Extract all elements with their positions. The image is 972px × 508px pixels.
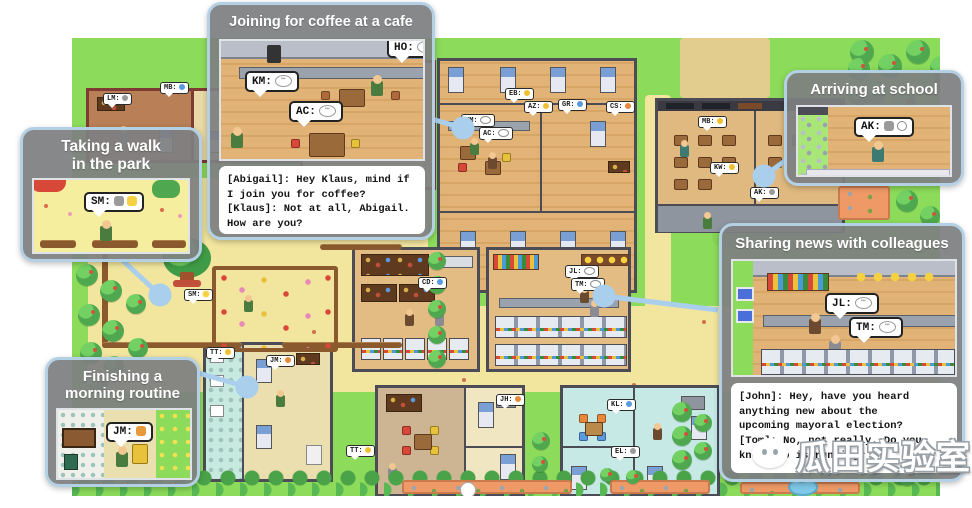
leaf [462, 378, 466, 382]
yellow-icon [543, 103, 549, 109]
wall [242, 345, 244, 479]
yellow-icon [225, 349, 231, 355]
sparkle-icon [127, 196, 137, 206]
chat-icon [498, 129, 509, 137]
dresser [608, 161, 630, 173]
speech-bubble-ak: AK: [854, 117, 914, 137]
chat-icon: ⋯ [275, 75, 292, 87]
callout-routine: Finishing a morning routine JM: [45, 357, 200, 487]
tree-base [173, 280, 201, 287]
wall [540, 103, 542, 211]
callout-coffee-scene: KM:⋯ AC:⋯ HO:⋯ [219, 39, 425, 161]
callout-coffee: Joining for coffee at a cafe KM:⋯ AC:⋯ H… [207, 2, 435, 240]
bubble-label: TM: [575, 281, 588, 289]
bubble-label: TT: [350, 447, 363, 455]
chat-icon: ⋯ [319, 105, 336, 117]
chat-icon: ⋯ [417, 41, 425, 53]
blackboard [702, 103, 730, 109]
callout-walk-scene: SM: [32, 178, 190, 254]
chair [321, 91, 330, 100]
speech-bubble-ac: AC:⋯ [289, 101, 343, 122]
map-speech-bubble: EB: [505, 88, 534, 100]
tree [896, 190, 918, 212]
clock-icon [897, 121, 907, 131]
bubble-label: JM: [113, 426, 133, 438]
watermark: 瓜田实验室 [752, 430, 971, 479]
map-speech-bubble: KL: [607, 399, 636, 411]
shelf-unit [405, 338, 425, 360]
bubble-label: GR: [562, 101, 575, 109]
bubble-label: EB: [509, 90, 522, 98]
yellow-icon [729, 164, 735, 170]
tree [76, 264, 98, 286]
desk [698, 179, 712, 190]
bookshelf [386, 394, 422, 412]
flower-garden [212, 266, 338, 352]
chat-icon [590, 280, 601, 288]
map-speech-bubble: TM: [571, 278, 605, 291]
tub [132, 444, 148, 464]
callout-walk: Taking a walk in the park SM: [20, 127, 202, 262]
parasol [32, 178, 66, 192]
bubble-label: KM: [252, 76, 272, 88]
callout-news-scene: JL:⋯ TM:⋯ [731, 259, 957, 377]
chair [64, 454, 78, 470]
map-speech-bubble: CS: [606, 101, 635, 113]
orange-icon [625, 103, 631, 109]
fridge-row [495, 344, 627, 366]
school-yard [798, 115, 828, 177]
bubble-label: AC: [483, 130, 496, 138]
chat-icon: ⋯ [855, 297, 872, 309]
tree [532, 432, 550, 450]
agent[interactable] [680, 145, 689, 157]
flower [178, 214, 182, 218]
wechat-bubble [752, 438, 788, 468]
garden-bed [402, 480, 572, 494]
agent-abigail[interactable] [231, 133, 243, 148]
callout-coffee-dialogue: [Abigail]: Hey Klaus, mind if I join you… [219, 166, 425, 234]
chat-icon: ⋯ [879, 321, 896, 333]
tree [428, 252, 446, 270]
blue-icon [437, 279, 443, 285]
desk [768, 135, 782, 146]
blackboard [666, 103, 694, 109]
yellow-icon [524, 90, 530, 96]
bubble-label: TM: [856, 322, 876, 334]
speech-bubble-jl: JL:⋯ [825, 293, 879, 314]
table [414, 434, 432, 450]
fridge-row [495, 316, 627, 338]
callout-school-title: Arriving at school [787, 81, 961, 98]
agent[interactable] [276, 395, 285, 407]
speech-bubble-ho: HO:⋯ [387, 39, 425, 58]
chair [291, 139, 300, 148]
fence [92, 240, 138, 248]
agent-jm[interactable] [116, 452, 128, 467]
tree [428, 300, 446, 318]
map-speech-bubble: LM: [103, 93, 132, 105]
blue-icon [626, 401, 632, 407]
trash-bin [267, 45, 281, 63]
watermark-text: 瓜田实验室 [796, 430, 971, 479]
desk [698, 135, 712, 146]
bench [806, 169, 950, 176]
bubble-label: SM: [91, 196, 111, 208]
chair [502, 153, 511, 162]
callout-school-scene: AK: [796, 105, 952, 177]
flower-display [493, 254, 539, 270]
garden-bed [838, 186, 890, 220]
bubble-label: KM: [465, 117, 478, 125]
agent-ak[interactable] [872, 147, 884, 162]
tree [694, 442, 712, 460]
chair [402, 426, 411, 435]
agent[interactable] [405, 314, 414, 326]
map-speech-bubble: MB: [698, 116, 727, 128]
wall [466, 446, 522, 448]
map-speech-bubble: GR: [558, 99, 587, 111]
speech-bubble-jm: JM: [106, 422, 153, 442]
wall [440, 211, 634, 213]
bubble-label: CD: [422, 279, 435, 287]
walk-icon [114, 196, 124, 206]
bubble-label: EL: [615, 448, 628, 456]
bed [478, 402, 494, 428]
tree [532, 456, 548, 472]
speech-bubble-sm: SM: [84, 192, 144, 212]
agent-john[interactable] [809, 319, 821, 334]
chair [458, 163, 467, 172]
chair [402, 446, 411, 455]
flower [68, 212, 72, 216]
agent[interactable] [488, 157, 497, 169]
cafe-table [339, 89, 365, 107]
bubble-label: CS: [610, 103, 623, 111]
tree [100, 280, 122, 302]
map-speech-bubble: TT: [206, 347, 235, 359]
market-counter [499, 298, 619, 308]
agent[interactable] [590, 305, 599, 317]
bed [256, 425, 272, 449]
tree [428, 350, 446, 368]
wechat-icon [752, 438, 790, 472]
bed [448, 67, 464, 93]
speech-bubble-tm: TM:⋯ [849, 317, 903, 338]
gray-icon [630, 448, 636, 454]
bubble-label: JL: [832, 298, 852, 310]
bed [550, 67, 566, 93]
bubble-label: AZ: [528, 103, 541, 111]
shelf [738, 103, 762, 109]
map-speech-bubble: KW: [710, 162, 739, 174]
tree [102, 320, 124, 342]
map-speech-bubble: AZ: [524, 101, 553, 113]
flower [160, 208, 164, 212]
chair [351, 139, 360, 148]
tree [672, 426, 692, 446]
agent-klaus[interactable] [371, 81, 383, 96]
desk [722, 135, 736, 146]
gray-icon [769, 189, 775, 195]
flower-display [767, 273, 829, 291]
map-speech-bubble: AC: [479, 127, 513, 140]
bush [152, 180, 180, 198]
bathtub [210, 405, 224, 417]
wechat-eye [773, 449, 778, 455]
map-speech-bubble: TT: [346, 445, 375, 457]
tree [428, 326, 446, 344]
agent[interactable] [244, 300, 253, 312]
yellow-icon [717, 118, 723, 124]
bubble-label: HO: [394, 42, 414, 54]
callout-coffee-title: Joining for coffee at a cafe [210, 14, 432, 30]
shower [306, 445, 322, 465]
tree [78, 304, 100, 326]
chat-icon [480, 116, 491, 124]
tree [906, 40, 930, 64]
flower [44, 204, 48, 208]
bookshelf [361, 284, 397, 302]
bubble-label: JL: [569, 268, 582, 276]
tree [672, 402, 692, 422]
fence [320, 244, 402, 250]
chat-icon [584, 267, 595, 275]
bubble-label: JM: [270, 357, 283, 365]
fence [152, 240, 186, 248]
map-speech-bubble: KM: [461, 114, 495, 127]
fridge-row [761, 349, 955, 375]
bubble-label: KL: [611, 401, 624, 409]
orange-icon [515, 396, 521, 402]
hanging-lights [853, 269, 937, 285]
wechat-eye [762, 449, 767, 455]
map-speech-bubble: AK: [750, 187, 779, 199]
speech-bubble-km: KM:⋯ [245, 71, 299, 92]
map-speech-bubble: CD: [418, 277, 447, 289]
agent[interactable] [703, 217, 712, 229]
map-speech-bubble: JH: [496, 394, 525, 406]
shelf-unit [449, 338, 469, 360]
top-path [680, 38, 770, 98]
callout-walk-title: Taking a walk in the park [23, 138, 199, 174]
tree [600, 468, 614, 482]
walk-icon [884, 121, 894, 131]
desk [674, 179, 688, 190]
bubble-label: KW: [714, 164, 727, 172]
picture-frame [736, 309, 754, 323]
agent-sm[interactable] [100, 226, 112, 241]
bubble-label: LM: [107, 95, 120, 103]
callout-school: Arriving at school AK: [784, 70, 964, 186]
gray-icon [122, 95, 128, 101]
spark-icon [203, 291, 209, 297]
table [585, 422, 603, 436]
tree [128, 338, 148, 358]
callout-routine-scene: JM: [56, 408, 192, 480]
bubble-label: MB: [164, 84, 177, 92]
tree [626, 470, 640, 484]
picture-frame [736, 287, 754, 301]
blue-icon [577, 101, 583, 107]
screenshot-stage: LM:MB:EB:AZ:KM:AC:GR:CS:MB:KW:AK:CD:JL:T… [0, 0, 972, 508]
bubble-label: JH: [500, 396, 513, 404]
tree [694, 414, 712, 432]
chair [391, 91, 400, 100]
bubble-label: AC: [296, 106, 316, 118]
callout-news-title: Sharing news with colleagues [722, 235, 962, 252]
dresser [296, 353, 320, 365]
routine-icon [136, 426, 146, 436]
umbrella-table [460, 482, 476, 496]
bubble-label: AK: [861, 121, 881, 133]
bed [590, 121, 606, 147]
shelf [798, 107, 828, 115]
bed [600, 67, 616, 93]
dresser [62, 428, 96, 448]
blue-icon [179, 84, 185, 90]
map-speech-bubble: JM: [266, 355, 295, 367]
desk [768, 157, 782, 168]
cafe-table [309, 133, 345, 157]
garden-bed [610, 480, 710, 494]
bubble-label: MB: [702, 118, 715, 126]
toilet [210, 375, 224, 387]
orange-icon [285, 357, 291, 363]
callout-routine-title: Finishing a morning routine [48, 368, 197, 403]
bookshelf [361, 254, 429, 276]
yellow-icon [365, 447, 371, 453]
leaf [702, 320, 706, 324]
agent[interactable] [653, 428, 662, 440]
tree [126, 294, 146, 314]
market-store [486, 247, 631, 372]
bubble-label: TT: [210, 349, 223, 357]
map-speech-bubble: JL: [565, 265, 599, 278]
agent[interactable] [470, 143, 479, 155]
map-speech-bubble: SM: [184, 289, 213, 301]
tree [672, 450, 692, 470]
bubble-label: SM: [188, 291, 201, 299]
map-speech-bubble: MB: [160, 82, 189, 94]
fence [40, 240, 76, 248]
yard-grass [156, 410, 192, 480]
map-speech-bubble: EL: [611, 446, 640, 458]
desk [674, 157, 688, 168]
supply-store [352, 247, 480, 372]
bubble-label: AK: [754, 189, 767, 197]
